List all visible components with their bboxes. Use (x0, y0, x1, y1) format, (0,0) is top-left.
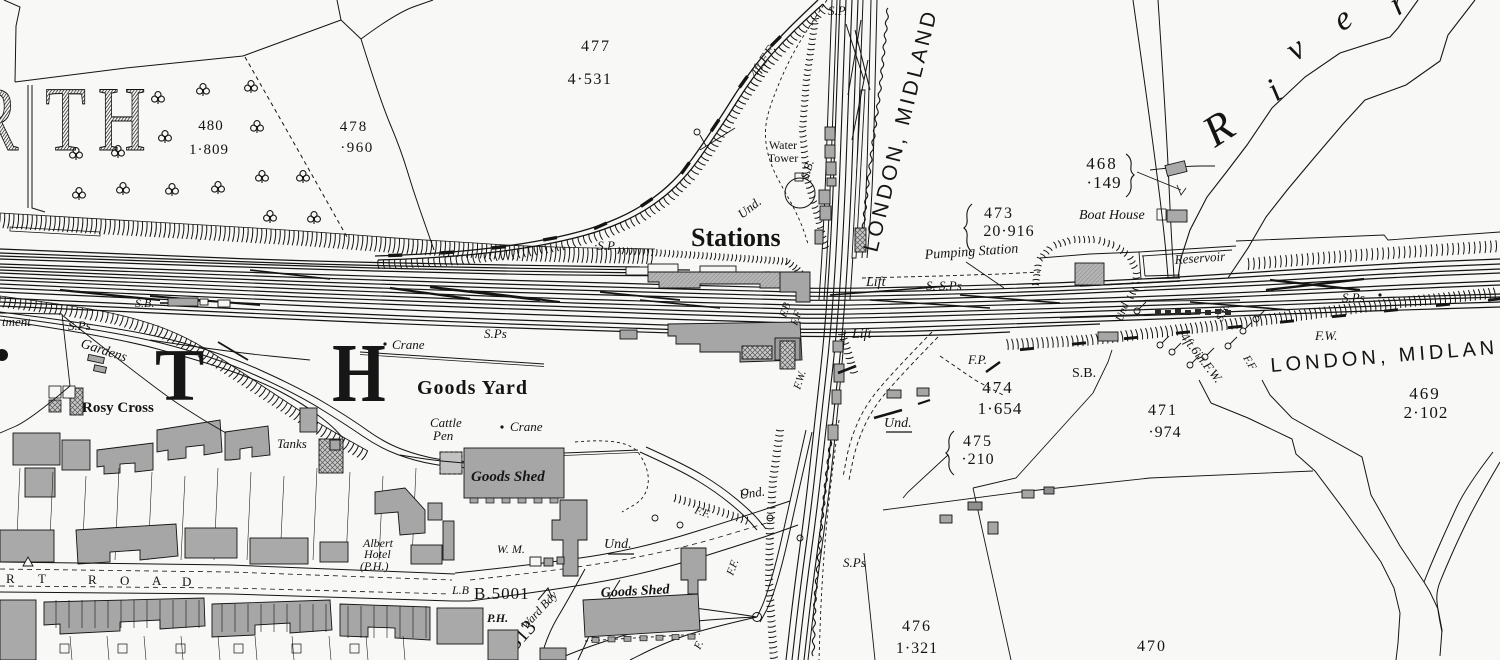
svg-text:2·102: 2·102 (1404, 403, 1449, 422)
svg-text:471: 471 (1148, 402, 1178, 419)
svg-text:1·654: 1·654 (978, 399, 1023, 418)
svg-text:Und.: Und. (604, 537, 632, 552)
svg-text:Stations: Stations (691, 223, 781, 252)
svg-text:·974: ·974 (1148, 424, 1181, 441)
svg-text:1·321: 1·321 (896, 640, 938, 657)
svg-text:469: 469 (1409, 384, 1441, 403)
svg-text:·149: ·149 (1086, 173, 1121, 192)
svg-text:473: 473 (984, 205, 1014, 222)
svg-text:R: R (0, 70, 19, 171)
svg-text:S.Ps: S.Ps (843, 555, 866, 570)
svg-text:F.P.: F.P. (967, 352, 987, 367)
svg-text:Lift: Lift (851, 327, 873, 342)
svg-text:474: 474 (982, 378, 1014, 397)
svg-text:Tanks: Tanks (277, 436, 307, 451)
svg-text:477: 477 (581, 38, 611, 55)
svg-text:Goods Yard: Goods Yard (417, 377, 528, 399)
svg-text:O: O (120, 573, 129, 588)
svg-text:475: 475 (963, 433, 993, 450)
svg-text:Water: Water (769, 138, 797, 152)
svg-text:·960: ·960 (340, 140, 374, 156)
svg-text:L.B: L.B (451, 583, 470, 597)
svg-text:S.B.: S.B. (135, 296, 154, 310)
svg-text:480: 480 (198, 118, 224, 134)
svg-text:Lift: Lift (865, 275, 887, 290)
svg-text:P.H.: P.H. (487, 611, 508, 625)
svg-text:S.P.: S.P. (828, 3, 847, 18)
svg-text:·S.P: ·S.P (594, 238, 615, 253)
svg-text:·210: ·210 (961, 451, 994, 468)
svg-text:F.W.: F.W. (1314, 328, 1337, 343)
svg-text:H: H (332, 327, 386, 420)
svg-text:R: R (88, 572, 97, 587)
svg-text:S.Ps: S.Ps (484, 326, 507, 341)
svg-text:Crane: Crane (392, 337, 425, 352)
svg-text:Crane: Crane (510, 419, 543, 434)
svg-text:Pen: Pen (432, 428, 453, 443)
svg-text:S.Ps: S.Ps (68, 318, 91, 333)
svg-text:478: 478 (340, 119, 369, 135)
svg-text:470: 470 (1137, 638, 1167, 655)
svg-text:Goods Shed: Goods Shed (471, 469, 545, 485)
svg-text:S.Ps: S.Ps (1342, 290, 1365, 305)
svg-text:R: R (6, 571, 15, 586)
svg-text:W. M.: W. M. (497, 542, 525, 556)
svg-text:T: T (155, 335, 204, 417)
svg-text:1·809: 1·809 (189, 142, 229, 158)
svg-text:Boat House: Boat House (1079, 208, 1145, 223)
svg-text:A: A (152, 573, 162, 588)
svg-text:S. S.Ps: S. S.Ps (926, 278, 962, 293)
svg-text:468: 468 (1086, 154, 1118, 173)
svg-text:tment: tment (2, 314, 31, 329)
svg-text:H: H (98, 70, 146, 171)
svg-text:476: 476 (902, 618, 932, 635)
svg-text:T: T (45, 70, 85, 171)
svg-text:Tower: Tower (768, 151, 798, 165)
svg-text:4·531: 4·531 (568, 71, 613, 88)
svg-text:S.B.: S.B. (1072, 366, 1096, 381)
svg-text:20·916: 20·916 (983, 223, 1034, 240)
svg-text:T: T (38, 571, 46, 586)
svg-text:D: D (182, 574, 191, 589)
svg-text:Und.: Und. (884, 416, 912, 431)
svg-text:B.5001: B.5001 (474, 584, 530, 603)
svg-text:Rosy Cross: Rosy Cross (82, 400, 154, 416)
